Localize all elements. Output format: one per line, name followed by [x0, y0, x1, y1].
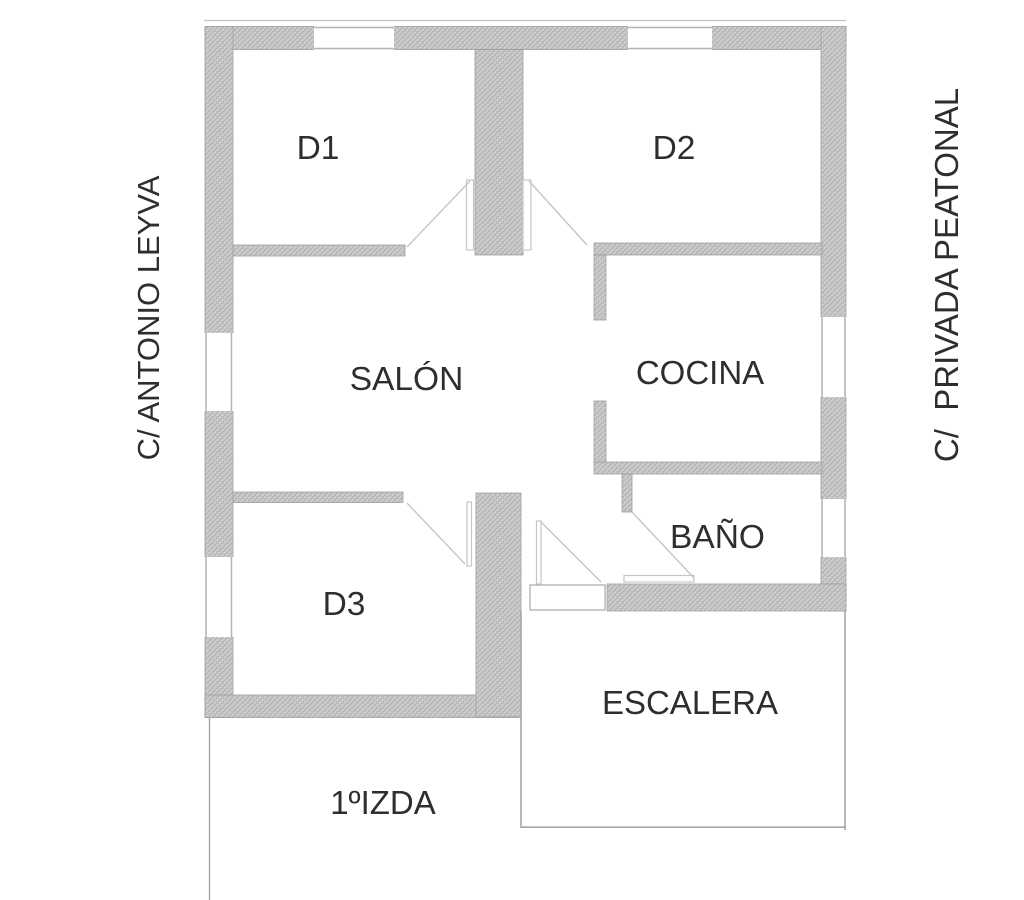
svg-text:D3: D3	[323, 586, 366, 623]
svg-text:COCINA: COCINA	[636, 354, 764, 391]
svg-text:D1: D1	[297, 130, 340, 167]
svg-text:C/ ANTONIO LEYVA: C/ ANTONIO LEYVA	[131, 175, 166, 460]
svg-text:BAÑO: BAÑO	[670, 518, 765, 556]
svg-text:C/ PRIVADA PEATONAL: C/ PRIVADA PEATONAL	[928, 88, 965, 462]
svg-text:SALÓN: SALÓN	[350, 360, 464, 398]
svg-text:D2: D2	[653, 130, 696, 167]
svg-text:ESCALERA: ESCALERA	[602, 684, 778, 721]
svg-text:1ºIZDA: 1ºIZDA	[330, 784, 436, 821]
